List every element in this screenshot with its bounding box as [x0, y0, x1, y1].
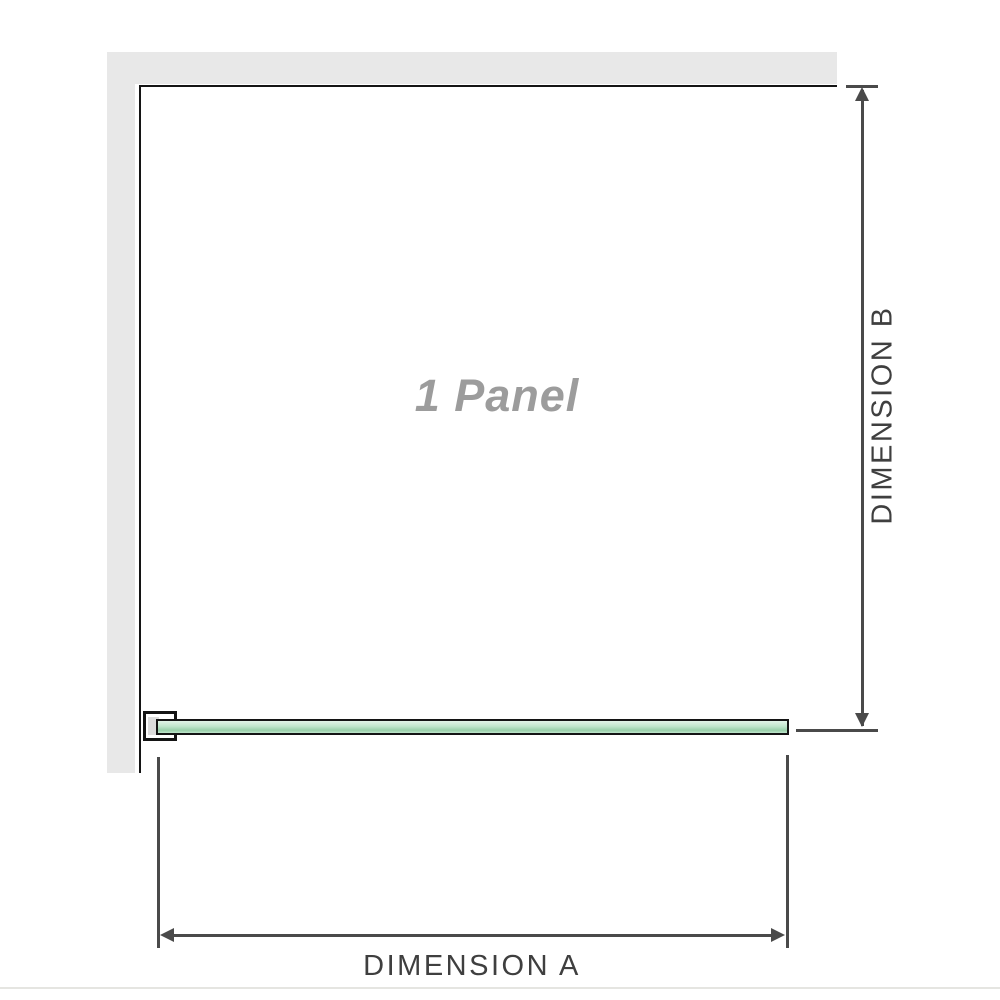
dimension-b-bottom-tick — [796, 729, 878, 732]
arrow-up-icon — [855, 87, 869, 101]
glass-panel — [156, 719, 789, 735]
panel-count-label: 1 Panel — [415, 370, 580, 422]
page-separator — [0, 987, 1000, 989]
dimension-b-label: DIMENSION B — [867, 305, 900, 524]
dimension-a-extension-right — [786, 755, 789, 948]
room-top-edge — [139, 85, 837, 87]
dimension-b-line — [861, 90, 864, 726]
arrow-down-icon — [855, 713, 869, 727]
arrow-right-icon — [771, 928, 785, 942]
wall-top — [107, 52, 837, 84]
wall-left — [107, 52, 135, 773]
dimension-a-label: DIMENSION A — [363, 950, 581, 983]
panel-diagram: 1 Panel DIMENSION B DIMENSION A — [0, 0, 1000, 1000]
dimension-a-line — [172, 934, 772, 937]
dimension-a-extension-left — [157, 757, 160, 948]
arrow-left-icon — [160, 928, 174, 942]
room-left-edge — [139, 85, 141, 773]
